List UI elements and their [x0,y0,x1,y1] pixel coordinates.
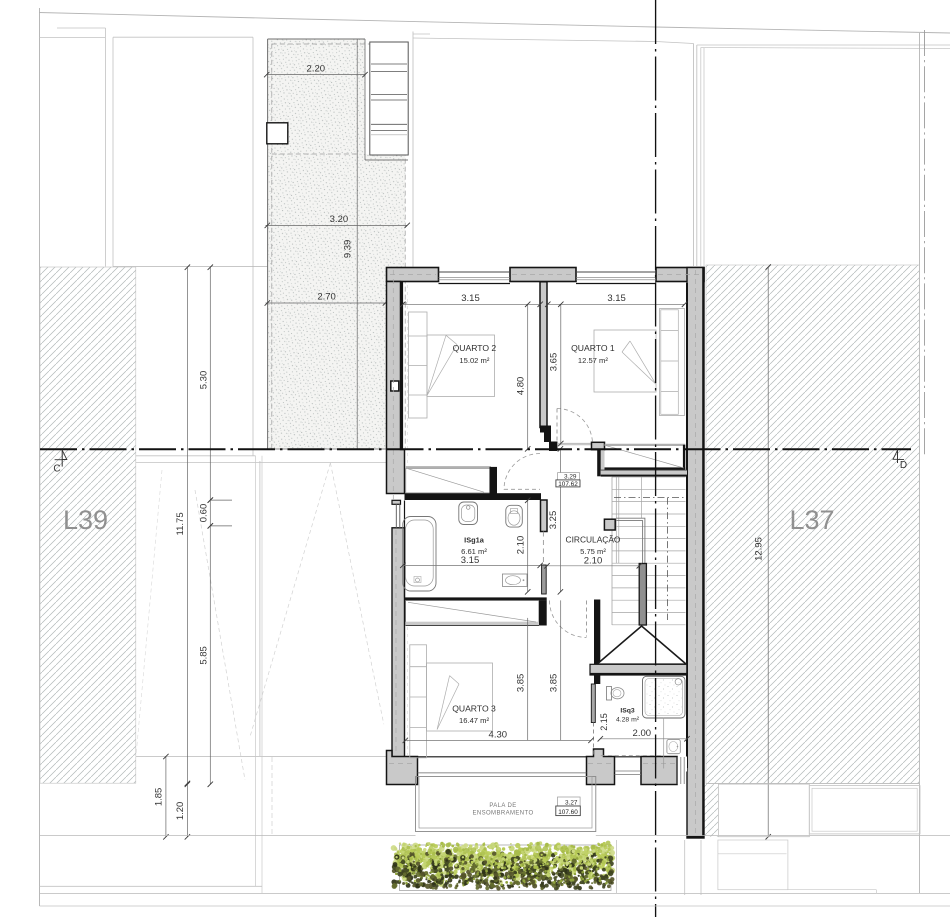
svg-text:9.39: 9.39 [343,240,354,259]
svg-text:3.85: 3.85 [548,674,559,693]
svg-text:L37: L37 [789,505,834,535]
svg-text:16.47 m²: 16.47 m² [459,716,489,725]
svg-text:3.20: 3.20 [330,214,349,225]
svg-text:3.65: 3.65 [548,353,559,372]
svg-text:ENSOMBRAMENTO: ENSOMBRAMENTO [472,810,533,816]
svg-text:5.85: 5.85 [198,646,209,665]
svg-text:CIRCULAÇÃO: CIRCULAÇÃO [566,535,621,545]
svg-text:L39: L39 [63,505,108,535]
svg-text:QUARTO 3: QUARTO 3 [452,704,496,714]
svg-text:15.02 m²: 15.02 m² [459,356,489,365]
svg-text:12.95: 12.95 [754,537,765,561]
svg-text:4.30: 4.30 [489,729,508,740]
svg-text:3.15: 3.15 [461,293,480,304]
svg-text:1.20: 1.20 [175,802,186,821]
svg-text:4.28 m²: 4.28 m² [616,716,640,723]
svg-text:5.30: 5.30 [198,371,209,390]
svg-text:11.75: 11.75 [175,512,186,535]
svg-text:1.85: 1.85 [154,788,165,807]
svg-text:2.15: 2.15 [599,713,609,731]
svg-text:3.29: 3.29 [564,474,577,481]
svg-text:2.20: 2.20 [307,63,326,74]
svg-text:4.80: 4.80 [515,377,526,396]
svg-text:2.70: 2.70 [317,292,336,303]
svg-text:2.00: 2.00 [633,728,652,739]
svg-text:PALA DE: PALA DE [489,803,516,809]
svg-text:2.10: 2.10 [515,536,526,555]
svg-text:107.62: 107.62 [558,481,578,488]
svg-text:0.60: 0.60 [198,504,209,523]
svg-text:QUARTO 1: QUARTO 1 [571,343,615,353]
svg-text:ISg1a: ISg1a [464,536,485,545]
svg-text:C: C [53,464,60,475]
svg-text:QUARTO 2: QUARTO 2 [453,343,497,353]
svg-text:D: D [900,460,907,471]
svg-text:3.85: 3.85 [515,674,526,693]
svg-text:12.57 m²: 12.57 m² [578,356,608,365]
svg-text:2.10: 2.10 [584,555,603,566]
svg-text:107.60: 107.60 [558,809,578,816]
svg-text:ISq3: ISq3 [620,708,635,715]
svg-text:3.25: 3.25 [548,511,559,530]
svg-text:3.15: 3.15 [607,293,626,304]
svg-text:3.15: 3.15 [461,555,480,566]
svg-text:3.27: 3.27 [565,800,578,807]
